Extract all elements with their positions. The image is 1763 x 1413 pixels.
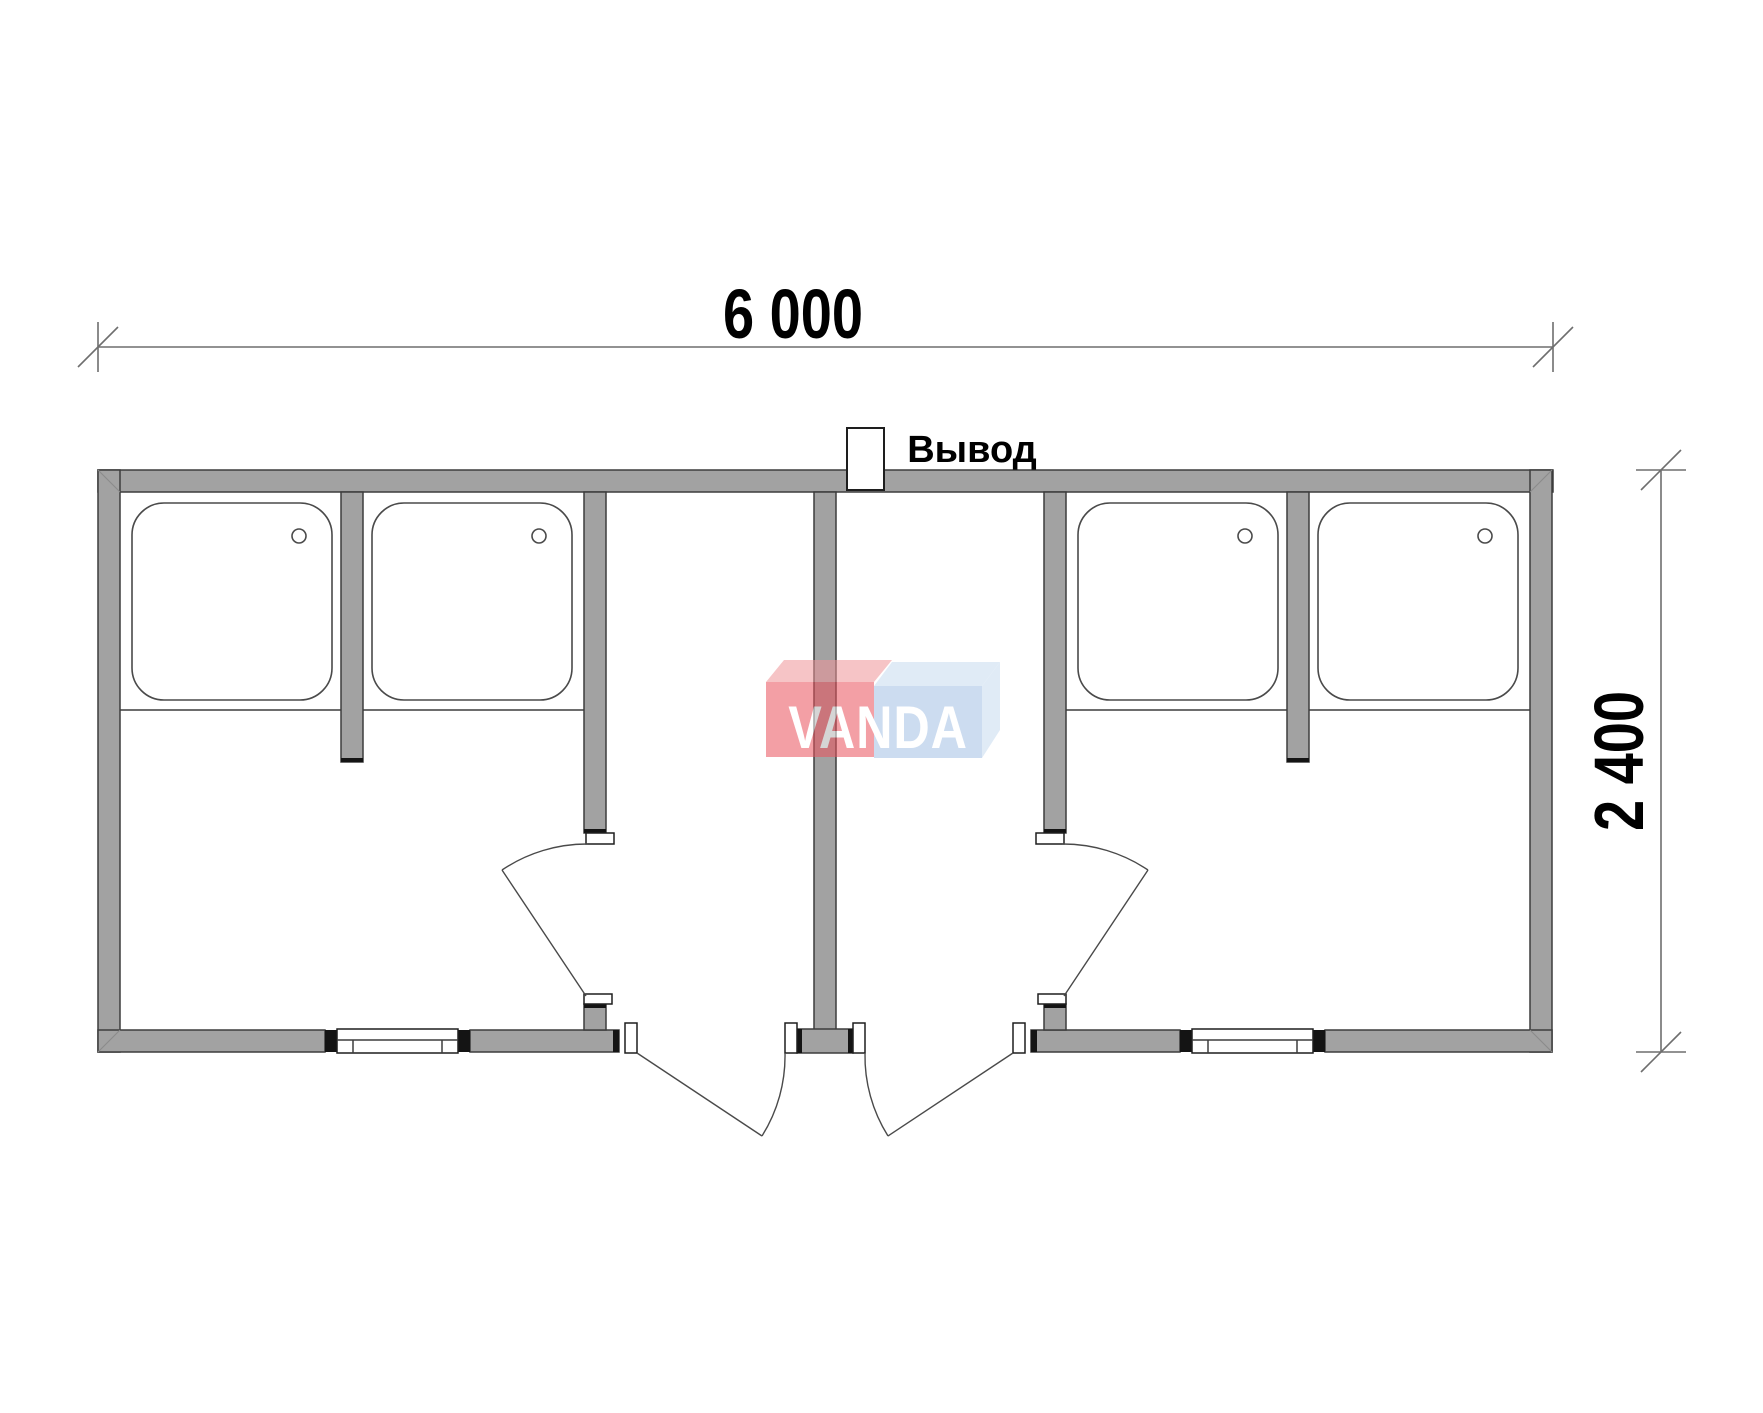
vanda-watermark: VANDA [766, 660, 1000, 761]
wall-right [1530, 470, 1552, 1052]
entry-jamb [1013, 1023, 1025, 1053]
interior-door-jamb [584, 994, 612, 1004]
wall-central-foot [797, 1029, 853, 1053]
entry-door-right [865, 1053, 1013, 1136]
height-dimension: 2 400 [1581, 450, 1686, 1072]
entry-jamb [625, 1023, 637, 1053]
wall-bottom-seg3 [1031, 1030, 1180, 1052]
wall-shower-partition-left [341, 492, 363, 762]
width-dimension: 6 000 [78, 276, 1573, 372]
floor-plan-drawing: 6 000 2 400 [0, 0, 1763, 1413]
window-left [337, 1029, 458, 1053]
drain-icon [1238, 529, 1252, 543]
interior-door-right [1062, 844, 1148, 996]
watermark-red-top-face [766, 660, 892, 682]
outlet-label: Вывод [907, 429, 1037, 471]
wall-bottom-seg2 [470, 1030, 619, 1052]
floor-plan-canvas: 6 000 2 400 [0, 0, 1763, 1413]
width-dimension-label: 6 000 [723, 276, 863, 353]
drain-icon [292, 529, 306, 543]
height-dimension-label: 2 400 [1581, 691, 1658, 831]
watermark-text: VANDA [788, 694, 968, 761]
wall-vestibule-left [584, 492, 606, 833]
outlet-marker [847, 428, 884, 490]
wall-vestibule-right [1044, 492, 1066, 833]
wall-shower-partition-right [1287, 492, 1309, 762]
entry-jamb [853, 1023, 865, 1053]
interior-door-jamb [586, 833, 614, 844]
wall-central [814, 492, 836, 1030]
entry-door-left [637, 1053, 785, 1136]
wall-bottom-seg4 [1325, 1030, 1552, 1052]
interior-door-jamb [1036, 833, 1064, 844]
interior-door-jamb [1038, 994, 1066, 1004]
window-right [1192, 1029, 1313, 1053]
watermark-blue-top-face [874, 662, 1000, 686]
wall-top [98, 470, 1553, 492]
interior-door-left [502, 844, 588, 996]
wall-bottom-seg1 [98, 1030, 325, 1052]
wall-left [98, 470, 120, 1052]
drain-icon [1478, 529, 1492, 543]
drain-icon [532, 529, 546, 543]
entry-jamb [785, 1023, 797, 1053]
